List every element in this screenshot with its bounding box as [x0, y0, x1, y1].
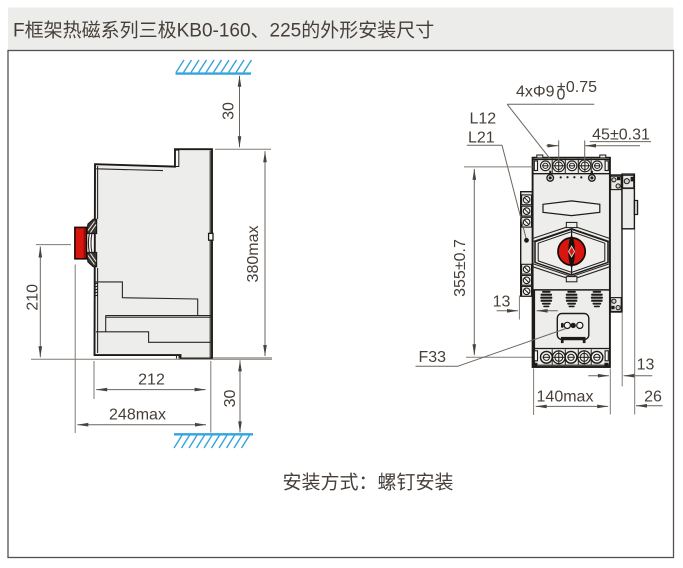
- svg-text:140max: 140max: [537, 388, 594, 405]
- svg-text:212: 212: [138, 372, 165, 389]
- svg-text:26: 26: [644, 389, 662, 406]
- svg-text:248max: 248max: [109, 407, 166, 424]
- svg-text:355±0.7: 355±0.7: [452, 239, 469, 297]
- svg-text:210: 210: [25, 284, 42, 311]
- svg-text:0: 0: [557, 86, 566, 103]
- svg-text:45±0.31: 45±0.31: [592, 126, 650, 143]
- svg-text:30: 30: [221, 102, 238, 120]
- svg-text:30: 30: [222, 390, 239, 408]
- svg-text:F框架热磁系列三极KB0-160、225的外形安装尺寸: F框架热磁系列三极KB0-160、225的外形安装尺寸: [13, 19, 434, 41]
- svg-text:L12: L12: [470, 110, 497, 127]
- svg-text:安装方式：螺钉安装: 安装方式：螺钉安装: [282, 472, 453, 494]
- svg-text:F33: F33: [419, 349, 447, 366]
- svg-text:L21: L21: [468, 130, 495, 147]
- svg-text:13: 13: [637, 357, 655, 374]
- svg-text:13: 13: [493, 294, 511, 311]
- svg-text:4xΦ9: 4xΦ9: [516, 84, 555, 101]
- svg-text:380max: 380max: [245, 226, 262, 283]
